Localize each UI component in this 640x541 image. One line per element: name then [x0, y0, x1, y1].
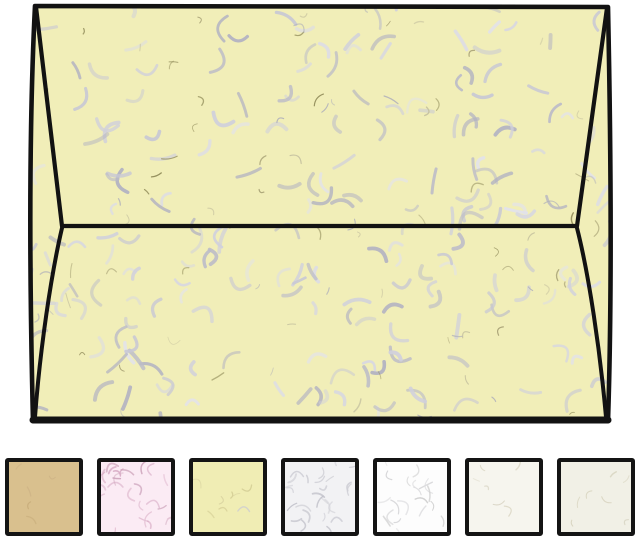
swatch-texture	[193, 462, 263, 532]
swatch-texture	[285, 462, 355, 532]
swatch-texture	[469, 462, 539, 532]
swatch-texture	[9, 462, 79, 532]
color-swatch-natural[interactable]	[557, 458, 635, 536]
color-swatch-white[interactable]	[373, 458, 451, 536]
color-swatch-pink[interactable]	[97, 458, 175, 536]
color-swatch-yellow[interactable]	[189, 458, 267, 536]
swatch-texture	[101, 462, 171, 532]
swatch-texture	[561, 462, 631, 532]
color-swatch-gray[interactable]	[281, 458, 359, 536]
product-image	[0, 0, 640, 445]
color-swatch-ivory[interactable]	[465, 458, 543, 536]
envelope-image	[0, 0, 640, 445]
color-swatch-row	[5, 458, 635, 536]
swatch-texture	[377, 462, 447, 532]
color-swatch-tan[interactable]	[5, 458, 83, 536]
